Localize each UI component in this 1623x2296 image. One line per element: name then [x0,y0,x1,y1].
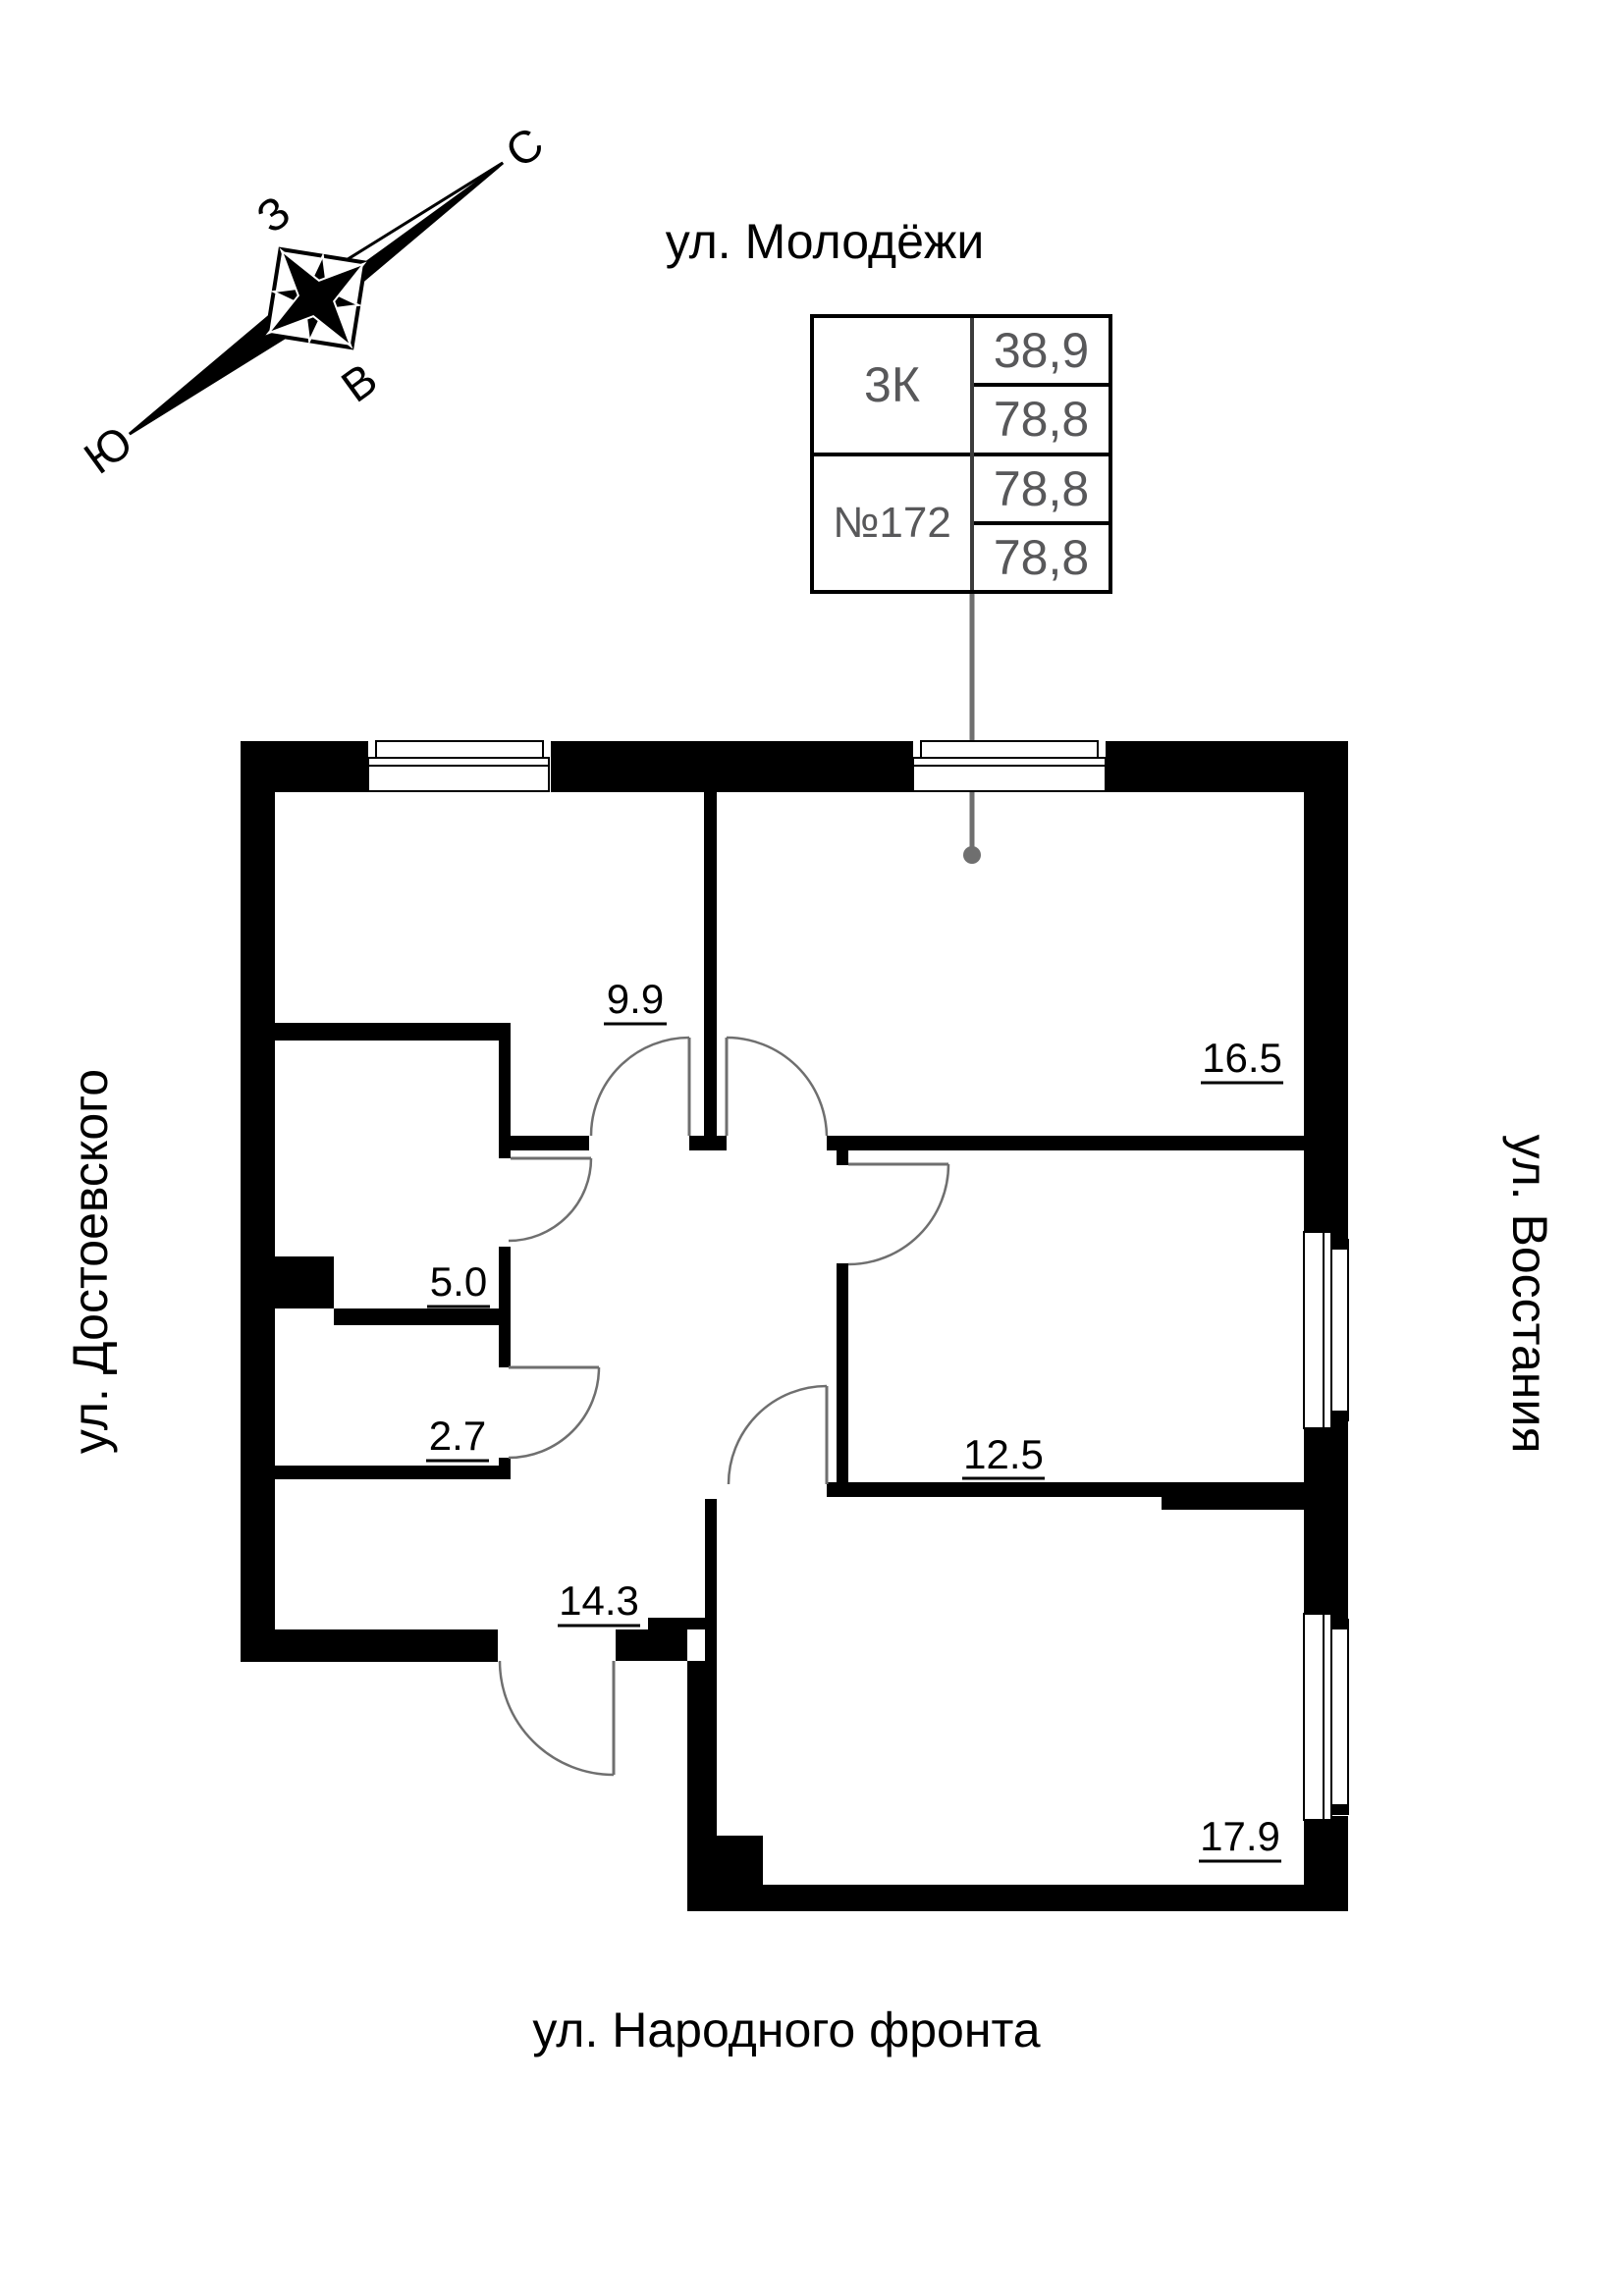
room-area-label: 5.0 [430,1258,487,1305]
area-value: 78,8 [974,387,1109,455]
wall-room4-bottom [273,1466,509,1479]
apartment-type: 3К [814,318,970,456]
compass-east-label: В [332,353,386,412]
info-table-right-column: 38,9 78,8 78,8 78,8 [974,318,1109,590]
window-sill [368,766,549,791]
apartment-info-table: 3К №172 38,9 78,8 78,8 78,8 [810,314,1112,594]
compass-rose: С Ю З В [20,41,607,559]
info-table-left-column: 3К №172 [814,318,974,590]
wall-right-segment [1304,1816,1348,1911]
door-room7 [729,1386,827,1484]
compass-star-cardinal [234,216,399,381]
street-label-left-group: ул. Достоевского [63,1069,118,1454]
street-label-top: ул. Молодёжи [666,214,985,269]
window-casing [913,758,1106,766]
window-right-room7 [1304,1614,1348,1820]
room-area-label: 12.5 [963,1431,1044,1477]
room-area-label: 16.5 [1202,1035,1282,1081]
wall-room3-room4-divider [334,1308,509,1325]
window-frame [1331,1620,1348,1814]
door-swing-arc [729,1386,827,1484]
compass-north-label: С [496,117,552,178]
door-swing-arc [509,1367,599,1458]
door-room5 [848,1164,948,1264]
door-room3 [509,1158,591,1241]
wall-hall-top-segment [509,1136,589,1150]
wall-room5-left-stub [837,1150,848,1165]
door-swing-arc [727,1038,827,1136]
window-sill [913,766,1106,791]
door-swing-arc [509,1158,591,1241]
door-room4 [509,1367,599,1458]
wall-room1-room3-divider [273,1023,499,1041]
window-sill [1304,1232,1324,1428]
door-swing-arc [500,1661,614,1775]
window-casing [1324,1232,1331,1428]
wall-hall-bottom-thin [827,1482,1162,1497]
window-casing [1324,1614,1331,1820]
window-sill [1304,1614,1324,1820]
wall-bottom-entry-right [616,1629,687,1661]
wall-bottom-room7 [687,1885,1348,1911]
wall-central-vertical [704,792,717,1136]
wall-room2-room5-divider [827,1136,1304,1150]
wall-hall-bottom-thick [1162,1482,1304,1510]
apartment-number: №172 [814,456,970,591]
compass-south-group: Ю [75,415,141,483]
window-top-right [913,741,1106,792]
wall-closet-vertical [499,1247,511,1367]
window-cap [1331,1804,1348,1814]
wall-top-segment [543,741,921,792]
floor-plan-page: ул. Молодёжи ул. Народного фронта ул. До… [0,0,1623,2296]
compass-south-label: Ю [75,415,141,483]
area-value: 78,8 [974,525,1109,590]
room-area-label: 17.9 [1200,1813,1280,1859]
wall-hall-top-segment [689,1136,727,1150]
door-swing-arc [848,1164,948,1264]
street-label-bottom: ул. Народного фронта [532,2002,1040,2057]
wall-left [241,741,275,1662]
wall-room7-left-thin [705,1499,717,1661]
door-swing-arc [591,1038,689,1136]
compass-west-group: З [247,186,299,242]
door-entry [500,1661,614,1775]
compass-east-group: В [332,353,386,412]
window-frame [1331,1240,1348,1420]
wall-pillar [273,1256,334,1308]
leader-dot [963,846,981,864]
area-value: 38,9 [974,318,1109,387]
window-frame [376,741,543,758]
room-area-label: 9.9 [607,976,664,1022]
door-room1 [591,1038,689,1136]
street-label-left: ул. Достоевского [63,1069,118,1454]
room-area-label: 2.7 [429,1413,486,1459]
wall-room5-left [837,1263,848,1484]
window-cap [1331,1240,1348,1250]
window-top-left [368,741,551,792]
compass-north-group: С [496,117,552,178]
wall-bottom-left [241,1629,498,1662]
wall-room7-left-thick [687,1661,717,1885]
room-area-label: 14.3 [559,1577,639,1624]
window-cap [1331,1411,1348,1420]
window-cap [1331,1620,1348,1629]
street-label-right-group: ул. Восстания [1502,1135,1557,1454]
wall-right-segment [1304,1420,1348,1620]
wall-right-segment [1304,741,1348,1240]
wall-room7-corner-block [717,1836,763,1885]
window-frame [921,741,1098,758]
street-label-right: ул. Восстания [1502,1135,1557,1454]
door-room2 [727,1038,827,1136]
window-right-room5 [1304,1232,1348,1428]
compass-west-label: З [247,186,299,242]
window-casing [368,758,549,766]
area-value: 78,8 [974,456,1109,525]
